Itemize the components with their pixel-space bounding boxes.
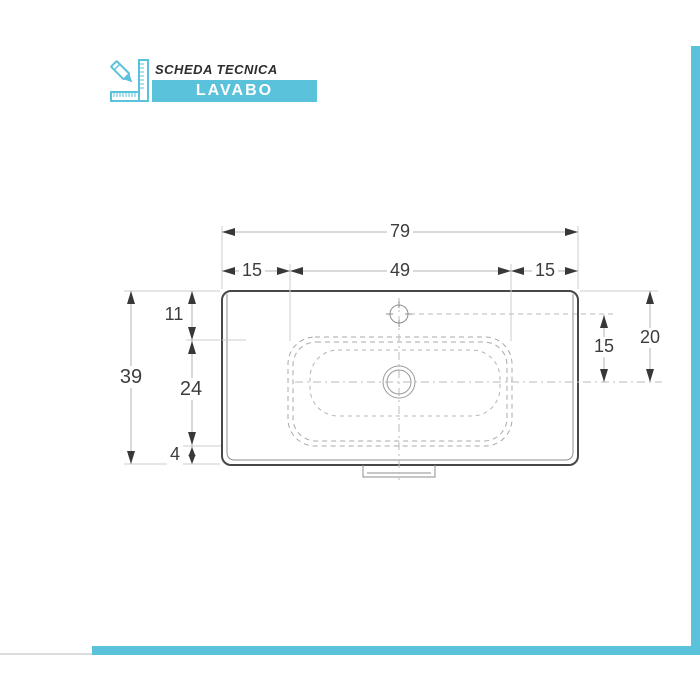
sink-outline [222,291,578,465]
washbasin-technical-drawing [0,0,700,700]
